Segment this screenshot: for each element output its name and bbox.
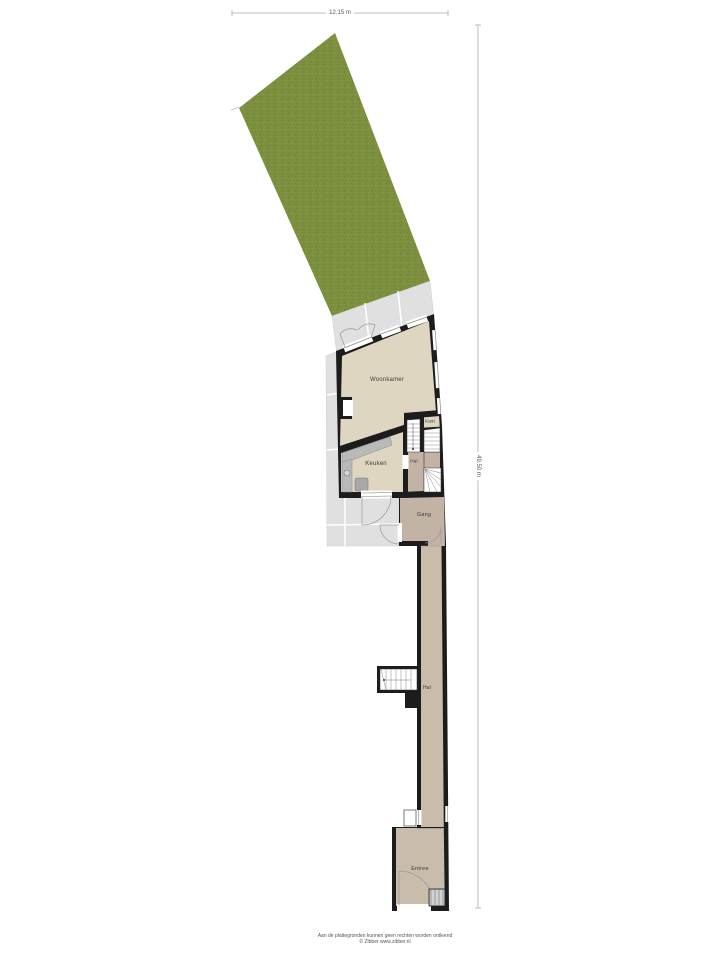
dimension-depth-label: 49.50 m: [475, 452, 481, 480]
room-label-woonkamer: Woonkamer: [370, 377, 404, 383]
footer: Aan de plattegronden kunnen geen rechten…: [235, 933, 535, 945]
garden-fence-stub: [231, 107, 239, 110]
stair-alcove: [380, 669, 417, 690]
side-stoop: [404, 810, 416, 826]
room-label-hal-midden: Hal: [410, 459, 418, 464]
footer-credit: © Zibber www.zibber.nl: [235, 939, 535, 945]
room-label-entree: Entree: [411, 866, 428, 872]
room-label-kast: Kast: [425, 419, 435, 424]
dimension-width-label: 12.15 m: [326, 10, 354, 16]
room-label-keuken: Keuken: [365, 461, 387, 467]
woonkamer-niche: [340, 397, 353, 419]
room-floors: [340, 321, 445, 906]
stove: [355, 478, 368, 491]
floorplan-canvas: 12.15 m 49.50 m Woonkamer Keuken Kast Ha…: [0, 0, 720, 960]
stair-flight-right: [424, 428, 440, 452]
room-label-hal: Hal: [423, 685, 431, 691]
gang-floor: [400, 496, 445, 546]
sink: [344, 470, 350, 476]
room-label-gang: Gang: [417, 512, 431, 518]
meter-closet: [429, 889, 445, 906]
floorplan-drawing: [0, 0, 720, 960]
garden: [239, 33, 430, 316]
